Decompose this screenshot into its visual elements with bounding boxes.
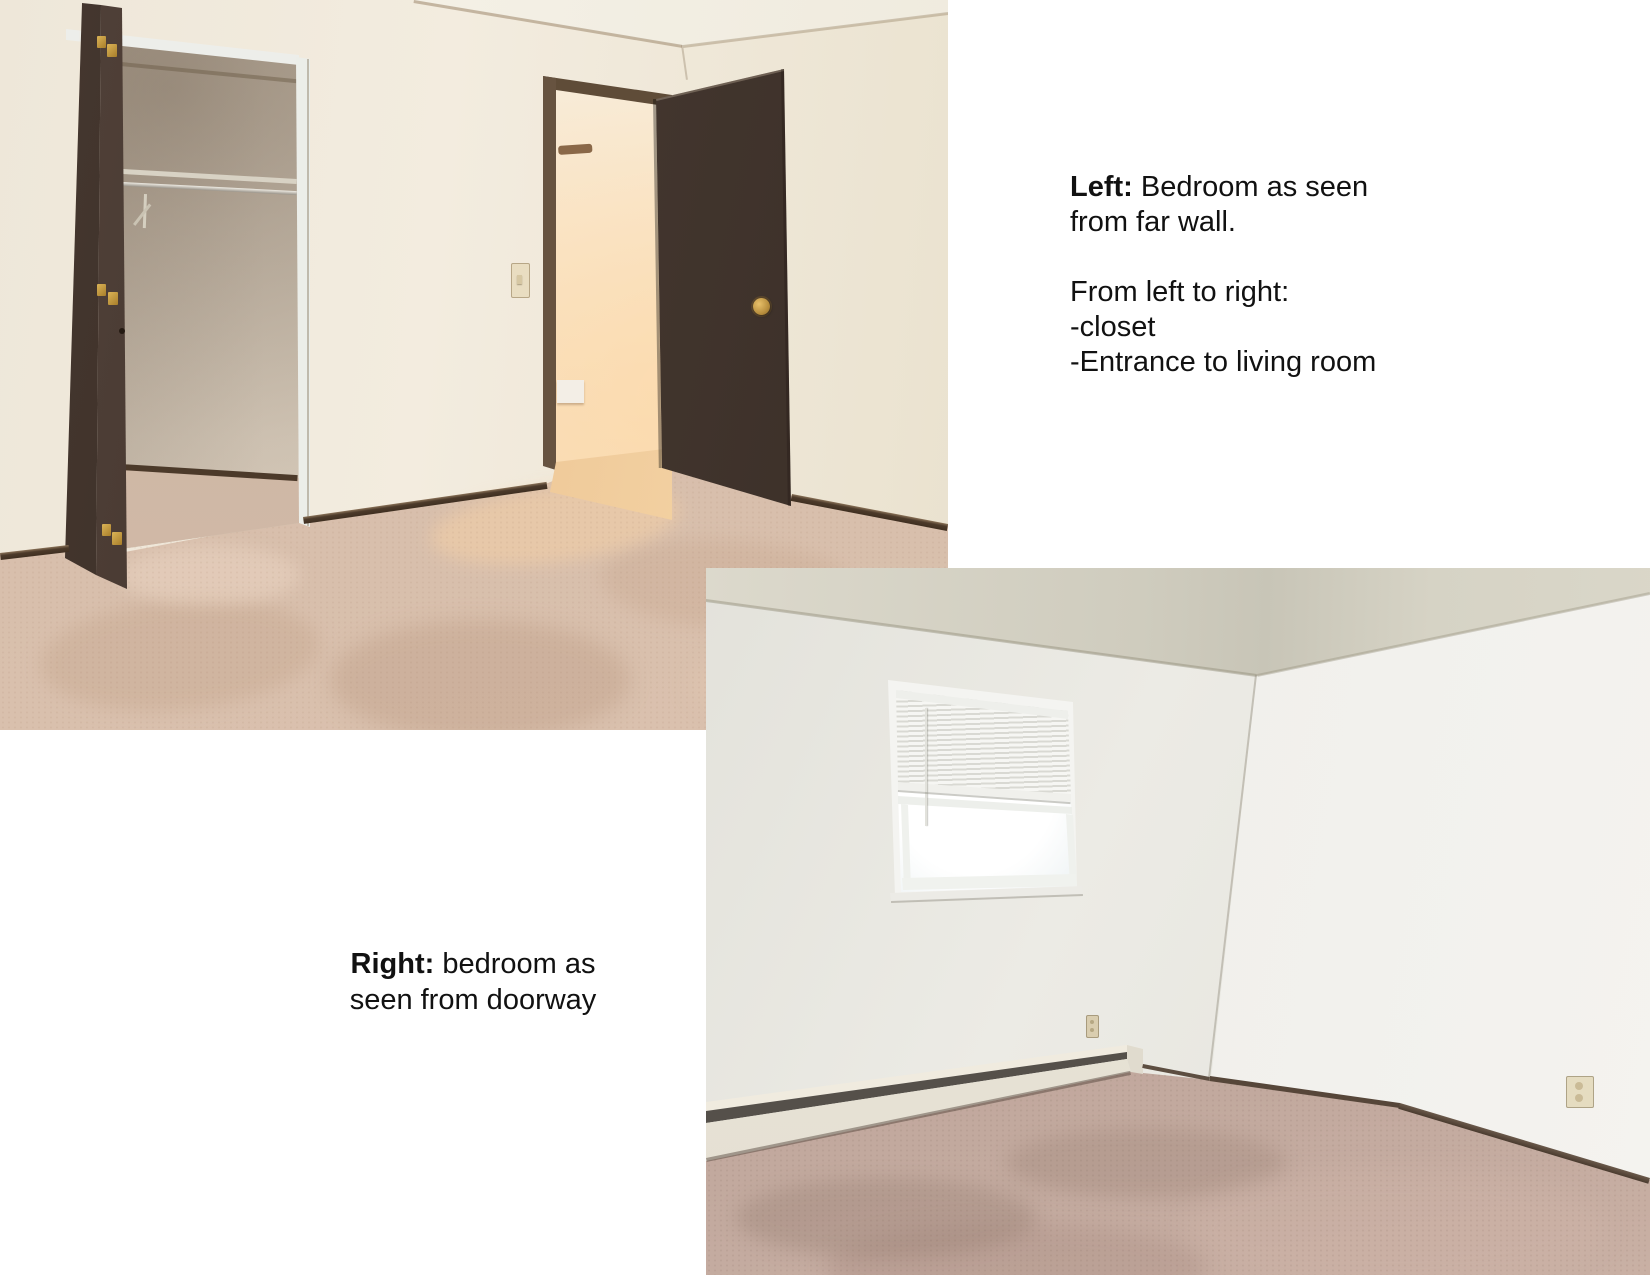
caption-lead-bold: Right:: [351, 948, 435, 980]
bifold-hinge: [97, 36, 106, 48]
window: [886, 678, 1082, 902]
outlet-socket: [1090, 1028, 1094, 1032]
bifold-hinge: [102, 524, 111, 536]
caption-line: From left to right:: [1070, 275, 1376, 310]
caption-lead-bold: Left:: [1070, 171, 1133, 203]
bifold-hinge: [107, 44, 117, 57]
outlet-socket: [1575, 1082, 1583, 1090]
caption-right-photo: Right: bedroom as seen from doorway: [336, 946, 610, 1018]
page: Left: Bedroom as seen from far wall. Fro…: [0, 0, 1650, 1275]
caption-line: Right: bedroom as: [336, 946, 610, 982]
caption-line: Left: Bedroom as seen: [1070, 170, 1376, 205]
living-room-heater: [557, 380, 584, 403]
outlet-socket: [1575, 1094, 1583, 1102]
caption-line: -Entrance to living room: [1070, 345, 1376, 380]
caption-blank-line: [1070, 240, 1376, 275]
electrical-outlet: [1566, 1076, 1594, 1108]
light-switch-toggle: [517, 275, 522, 284]
closet-trim-shadow: [307, 59, 309, 526]
photo-bedroom-from-doorway: [706, 568, 1650, 1275]
bifold-hinge: [97, 284, 106, 296]
caption-line: seen from doorway: [336, 982, 610, 1018]
door-knob: [753, 298, 770, 315]
bifold-hinge: [112, 532, 122, 545]
caption-line: -closet: [1070, 310, 1376, 345]
caption-line: from far wall.: [1070, 205, 1376, 240]
bifold-knob: [119, 328, 125, 334]
bifold-hinge: [108, 292, 118, 305]
blinds-tilt-wand: [925, 708, 927, 826]
electrical-outlet: [1086, 1015, 1099, 1038]
caption-left-photo: Left: Bedroom as seen from far wall. Fro…: [1070, 170, 1376, 380]
outlet-socket: [1090, 1020, 1094, 1024]
